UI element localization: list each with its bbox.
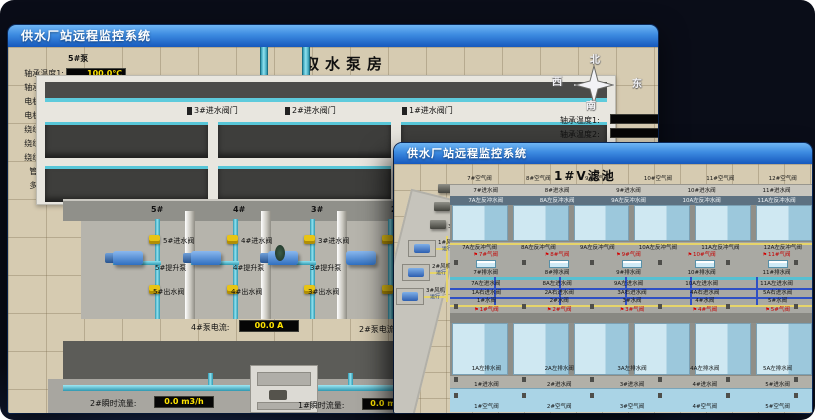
valve-label-row: 7#进水阀8#进水阀9#进水阀10#进水阀11#进水阀 [450,188,812,195]
pillar [185,211,195,319]
panel-value [610,114,658,124]
pipe-gallery: 7A左反冲气阀8A左反冲气阀9A左反冲气阀10A左反冲气阀11A左反冲气阀12A… [450,241,812,313]
bay-pipe [388,219,393,319]
front-cells-wall [450,313,812,323]
valve-label: 8#排水阀 [545,270,570,277]
valve-label-row: 1#空气阀2#空气阀3#空气阀4#空气阀5#空气阀 [450,404,812,411]
water-pipe [756,277,758,305]
valve-icon[interactable] [227,235,238,244]
inlet-valve-label: 3#进水阀门 [187,105,238,116]
valve-label: 3#出水阀 [308,287,339,297]
valve-label: 9A左反冲水阀 [611,198,646,205]
valve-machines-strip [454,393,810,398]
valve-label: 1#空气阀 [474,404,499,411]
scene-title: 取水泵房 [304,53,388,74]
filter-cell [513,205,569,241]
valve-label: 4A右进水阀 [690,290,719,297]
valve-label: 10A左反冲水阀 [682,198,720,205]
valve-label: 8A左进水阀 [542,281,571,288]
blower-status: 运行 [436,269,446,276]
filter-cell [452,323,508,375]
valve-machines-strip [454,377,810,382]
pump-icon[interactable] [430,220,446,229]
valve-label-row: 7#气阀8#气阀9#气阀10#气阀11#气阀 [450,252,812,259]
valve-label: 4#进水阀 [241,236,272,246]
filter-cell [634,205,690,241]
valve-label: 8A左反冲水阀 [540,198,575,205]
valve-label: 11A左进水阀 [760,281,793,288]
bay-number: 4# [233,205,245,214]
valve-label: 11A左反冲水阀 [757,198,795,205]
valve-label: 9#排水阀 [616,270,641,277]
valve-label: 1A右进水阀 [472,290,501,297]
pump-icon[interactable] [434,202,450,211]
scene-filter-pool: 1#V滤池 1#水泵 2#水泵 3#水泵 1#风机 运行 2#风机 运行 3#风… [394,164,812,413]
valve-label: 4#出水阀 [231,287,262,297]
cabinet-panel [257,372,311,386]
compass: 北 西 南 东 [548,53,653,117]
blower-unit [408,268,424,277]
valve-label: 5A右进水阀 [763,290,792,297]
filter-block: 7#空气阀8#空气阀9#空气阀10#空气阀11#空气阀12#空气阀 7#进水阀8… [450,176,812,413]
valve-label: 9A左进水阀 [614,281,643,288]
readout-label: 4#泵电流: [191,322,230,333]
valve-label: 12#空气阀 [769,176,797,183]
window-title: 供水厂站远程监控系统 [21,29,151,43]
valve-label: 7#排水阀 [473,270,498,277]
blower-unit [414,244,430,253]
blower-icon[interactable] [402,264,430,281]
inlet-valve-label: 1#进水阀门 [402,105,453,116]
panel-label: 轴承温度2: [560,129,600,140]
compass-east: 东 [632,75,642,90]
compass-west: 西 [552,73,562,88]
air-valve-label: 11#气阀 [762,252,790,259]
valve-icon[interactable] [382,285,393,294]
panel-label: 轴承温度1: [560,115,600,126]
valve-machines-strip [454,260,810,265]
valve-label: 9#空气阀 [585,176,610,183]
water-pipe [559,277,561,305]
valve-label: 2#空气阀 [547,404,572,411]
valve-label: 11#空气阀 [706,176,734,183]
intake-cell [218,166,391,202]
valve-machines-strip [454,304,810,309]
pump-label: 3#提升泵 [310,263,341,273]
water-pipe [450,297,812,299]
titlebar[interactable]: 供水厂站远程监控系统 [394,143,812,164]
intake-back-wall [45,82,607,102]
valve-label: 7A左反冲水阀 [468,198,503,205]
readout-value: 0.0 m3/h [154,396,214,408]
water-pipe [690,277,692,305]
panel-header: 5#泵 [12,53,126,65]
valve-label: 7A左反冲气阀 [462,245,497,252]
bay-number: 3# [311,205,323,214]
filter-cell [513,323,569,375]
readout-value: 00.0 A [239,320,299,332]
valve-label: 10#进水阀 [688,188,716,195]
blower-unit [402,292,418,301]
air-valve-label: 9#气阀 [616,252,641,259]
valve-label: 11A左反冲气阀 [701,245,739,252]
titlebar[interactable]: 供水厂站远程监控系统 [8,25,658,47]
valve-label-row: 7#空气阀8#空气阀9#空气阀10#空气阀11#空气阀12#空气阀 [450,176,812,183]
water-pipe [450,288,812,290]
valve-label: 8#空气阀 [526,176,551,183]
valve-label: 7#空气阀 [467,176,492,183]
desktop: 供水厂站远程监控系统 5#泵 轴承温度1:100.0℃ 轴承温度2:100.0℃… [0,0,815,420]
air-valve-label: 7#气阀 [473,252,498,259]
air-valve-label: 10#气阀 [688,252,716,259]
valve-label: 5#进水阀 [163,236,194,246]
bay-number: 5# [151,205,163,214]
pipe-stub [208,373,213,385]
readout-label: 2#泵电流: [359,324,398,335]
air-valve-label: 8#气阀 [545,252,570,259]
valve-label: 10A左反冲气阀 [639,245,677,252]
valve-icon[interactable] [304,235,315,244]
pump-icon[interactable] [113,251,143,265]
valve-label: 7#进水阀 [473,188,498,195]
valve-label: 3#空气阀 [620,404,645,411]
readout-label: 1#瞬时流量: [298,400,345,411]
filter-cell [574,323,630,375]
filter-cell [756,323,812,375]
valve-label: 7A左进水阀 [471,281,500,288]
valve-label-row: 7A左反冲气阀8A左反冲气阀9A左反冲气阀10A左反冲气阀11A左反冲气阀12A… [450,245,812,252]
intake-cell [45,166,208,202]
pump-label: 4#提升泵 [233,263,264,273]
valve-icon[interactable] [382,235,393,244]
back-ledge: 7#进水阀8#进水阀9#进水阀10#进水阀11#进水阀 [450,184,812,196]
pump-icon[interactable] [191,251,221,265]
front-filter-cells [450,323,812,375]
valve-label: 9#进水阀 [616,188,641,195]
pipe-stub [348,373,353,385]
inlet-valve-label: 2#进水阀门 [285,105,336,116]
back-filter-cells [450,205,812,241]
backwash-trough: 7A左反冲水阀8A左反冲水阀9A左反冲水阀10A左反冲水阀11A左反冲水阀 [450,196,812,205]
valve-label: 10#空气阀 [644,176,672,183]
water-pipe [494,277,496,305]
valve-label: 3#进水阀 [318,236,349,246]
blower-icon[interactable] [408,240,436,257]
filter-cell [695,323,751,375]
valve-icon[interactable] [149,235,160,244]
valve-label: 4#空气阀 [692,404,717,411]
valve-label: 5#出水阀 [153,287,184,297]
blower-icon[interactable] [396,288,424,305]
filter-cell [695,205,751,241]
valve-label: 11#排水阀 [762,270,790,277]
valve-label: 8A左反冲气阀 [521,245,556,252]
valve-label: 8#进水阀 [545,188,570,195]
valve-label: 9A左反冲气阀 [580,245,615,252]
front-ledge: 1#进水阀2#进水阀3#进水阀4#进水阀5#进水阀 [450,375,812,388]
valve-label: 10#排水阀 [688,270,716,277]
filter-cell [634,323,690,375]
valve-label-row: 7A左反冲水阀8A左反冲水阀9A左反冲水阀10A左反冲水阀11A左反冲水阀 [450,198,812,205]
compass-south: 南 [586,97,596,112]
flowmeter-icon [269,390,287,400]
valve-label: 11#进水阀 [762,188,790,195]
intake-cell [45,122,208,158]
valve-label: 5#空气阀 [765,404,790,411]
air-header-pipe [450,243,812,245]
pump-label: 5#提升泵 [155,263,186,273]
compass-north: 北 [590,51,600,66]
window-filter-pool: 供水厂站远程监控系统 1#V滤池 1#水泵 2#水泵 3#水泵 1#风机 运行 … [394,143,812,413]
pump-icon[interactable] [346,251,376,265]
filter-cell [452,205,508,241]
window-title: 供水厂站远程监控系统 [407,147,527,160]
valve-label-row: 7#排水阀8#排水阀9#排水阀10#排水阀11#排水阀 [450,270,812,277]
valve-label: 12A左反冲气阀 [764,245,802,252]
blower-status: 运行 [430,293,440,300]
equipment-object [275,245,285,261]
intake-cell [218,122,391,158]
valve-label: 3A右进水阀 [617,290,646,297]
filter-cell [574,205,630,241]
panel-value [610,128,658,138]
water-pipe [625,277,627,305]
inlet-channel: 1#空气阀2#空气阀3#空气阀4#空气阀5#空气阀 [450,388,812,412]
readout-label: 2#瞬时流量: [90,398,137,409]
filter-cell [756,205,812,241]
